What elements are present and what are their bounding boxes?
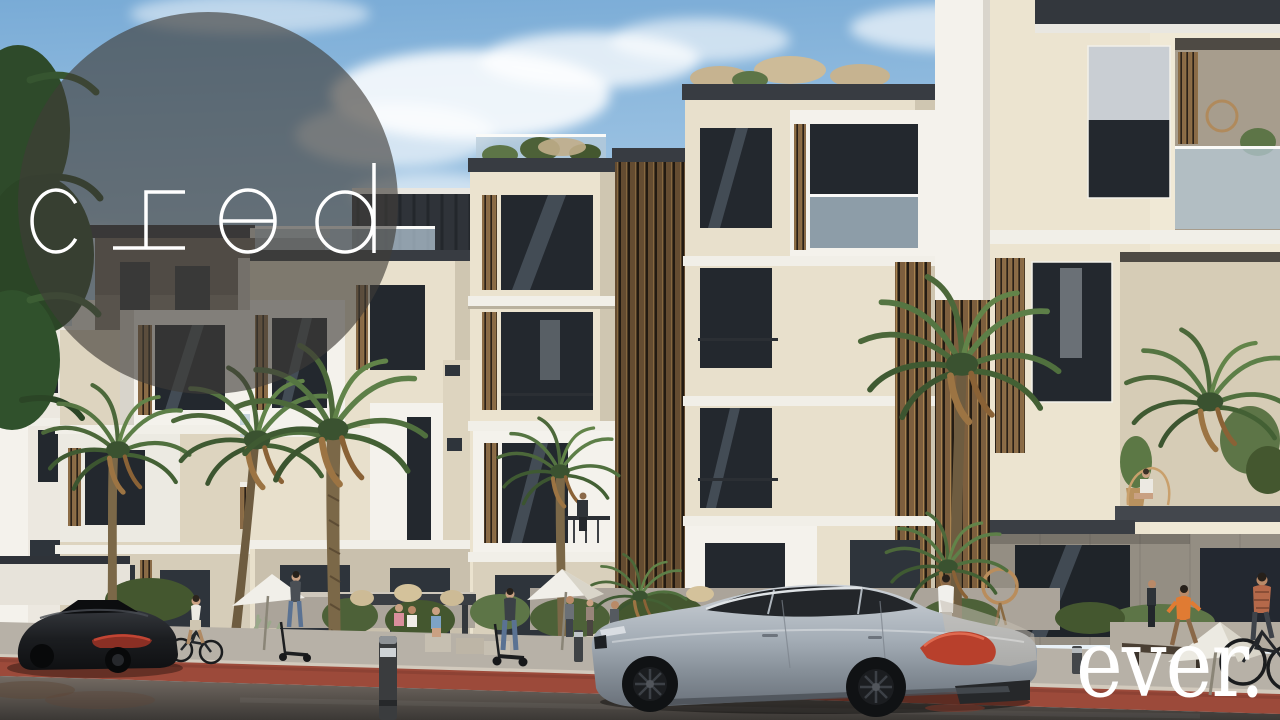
building-right-center bbox=[682, 56, 939, 630]
bollard-foreground bbox=[379, 636, 397, 720]
thumbnail-canvas: cred ever. bbox=[0, 0, 1280, 720]
letter-d-bowl bbox=[317, 192, 373, 252]
louver-bay bbox=[612, 148, 690, 640]
building-far-right bbox=[935, 0, 1280, 645]
letter-r-turned bbox=[113, 192, 185, 248]
cred-logo bbox=[0, 150, 420, 270]
letter-c bbox=[32, 190, 76, 252]
watermark-ever: ever. bbox=[1076, 618, 1264, 712]
